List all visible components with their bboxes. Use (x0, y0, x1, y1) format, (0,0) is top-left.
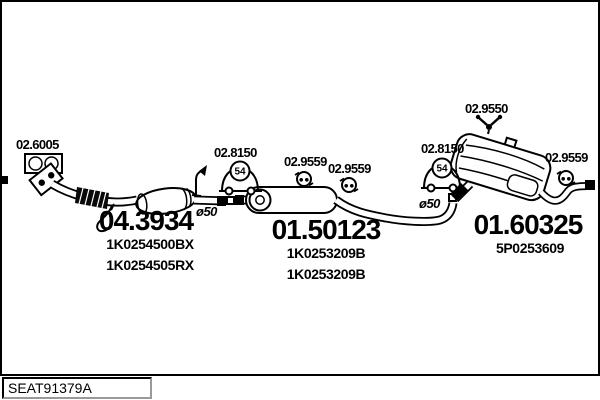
rubber-hanger-mid-2-icon (340, 178, 358, 192)
mount-rear-label: 02.8150 (421, 142, 464, 155)
mount-front-badge: 54 (234, 167, 246, 178)
drawing-code-box: SEAT91379A (2, 377, 152, 399)
oe-number-rear-1: 5P0253609 (470, 241, 590, 255)
oe-number-front-2: 1K0254505RX (90, 258, 210, 272)
diameter-label-rear: ø50 (419, 197, 440, 210)
left-anchor-block (0, 176, 8, 184)
drawing-code: SEAT91379A (8, 380, 92, 396)
part-number-front: 04.3934 (86, 207, 206, 235)
pipe-connector-front (227, 197, 234, 204)
tail-anchor-block (585, 180, 595, 190)
hanger-mid-1-label: 02.9559 (284, 155, 327, 168)
part-number-middle: 01.50123 (264, 216, 388, 244)
oe-number-middle-2: 1K0253209B (266, 267, 386, 281)
exhaust-diagram-svg: 54 54 (0, 0, 600, 400)
hanger-tail-label: 02.9559 (545, 151, 588, 164)
gasket-label: 02.6005 (16, 138, 59, 151)
mount-rear-badge: 54 (436, 164, 448, 175)
hanger-mid-2-label: 02.9559 (328, 162, 371, 175)
oe-number-middle-1: 1K0253209B (266, 246, 386, 260)
mount-front-label: 02.8150 (214, 146, 257, 159)
oe-number-front-1: 1K0254500BX (90, 237, 210, 251)
part-number-rear: 01.60325 (466, 211, 590, 239)
rubber-hanger-tail-icon (557, 171, 575, 185)
hanger-rear-top-label: 02.9550 (465, 102, 508, 115)
parts-diagram-page: 54 54 (0, 0, 600, 400)
rubber-hanger-mid-1-icon (295, 172, 313, 186)
